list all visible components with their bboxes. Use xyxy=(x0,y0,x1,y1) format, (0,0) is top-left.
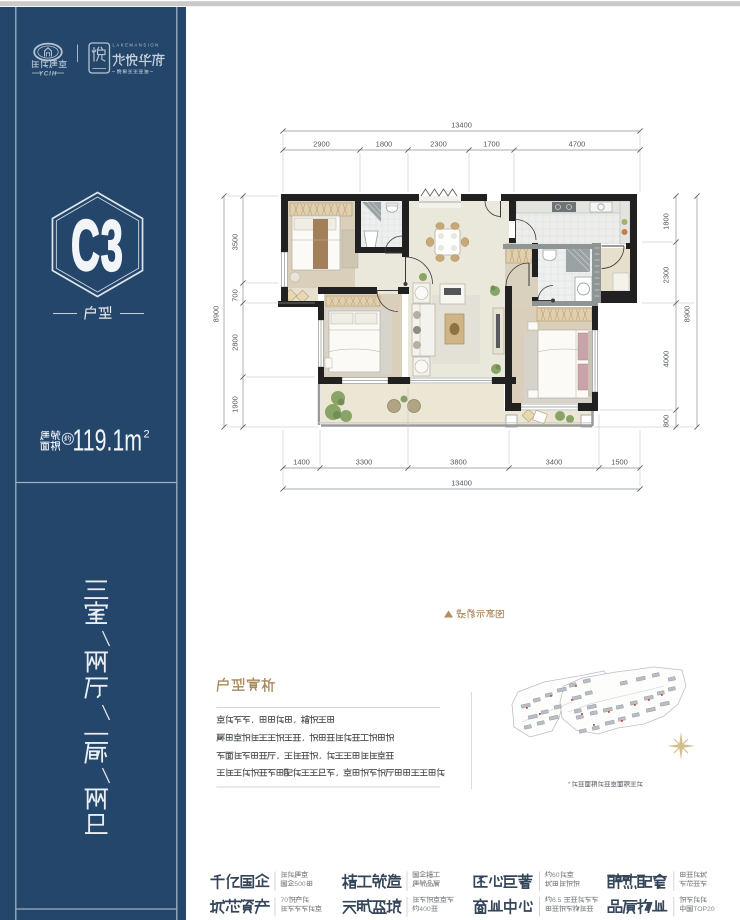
svg-text:1400: 1400 xyxy=(293,458,310,467)
svg-text:2300: 2300 xyxy=(662,267,671,284)
svg-text:1700: 1700 xyxy=(483,140,500,149)
svg-text:1800: 1800 xyxy=(376,140,393,149)
svg-text:800: 800 xyxy=(662,415,671,428)
svg-text:400: 400 xyxy=(419,906,431,913)
svg-text:2900: 2900 xyxy=(313,140,330,149)
svg-text:500: 500 xyxy=(294,881,306,888)
svg-text:4700: 4700 xyxy=(569,140,586,149)
svg-text:60: 60 xyxy=(552,872,560,879)
svg-text:13400: 13400 xyxy=(451,121,472,130)
svg-text:1900: 1900 xyxy=(231,396,240,413)
svg-text:2300: 2300 xyxy=(430,140,447,149)
svg-text:8900: 8900 xyxy=(212,306,221,323)
svg-text:LAKEMANSION: LAKEMANSION xyxy=(113,43,160,48)
svg-text:2: 2 xyxy=(144,429,150,441)
svg-text:700: 700 xyxy=(231,289,240,302)
svg-text:8900: 8900 xyxy=(683,306,692,323)
svg-text:3500: 3500 xyxy=(231,234,240,251)
svg-text:3300: 3300 xyxy=(356,458,373,467)
svg-text:2800: 2800 xyxy=(231,334,240,351)
svg-text:4000: 4000 xyxy=(662,351,671,368)
svg-text:3800: 3800 xyxy=(450,458,467,467)
svg-text:70: 70 xyxy=(281,897,289,904)
svg-text:TOP20: TOP20 xyxy=(693,906,715,913)
svg-text:119.1m: 119.1m xyxy=(73,423,143,458)
svg-text:1800: 1800 xyxy=(662,213,671,230)
svg-text:3400: 3400 xyxy=(546,458,563,467)
svg-text:13400: 13400 xyxy=(451,479,472,488)
svg-text:YCIH: YCIH xyxy=(39,72,57,78)
svg-text:C3: C3 xyxy=(71,207,124,286)
svg-text:1500: 1500 xyxy=(611,458,628,467)
svg-text:6.5: 6.5 xyxy=(552,897,562,904)
